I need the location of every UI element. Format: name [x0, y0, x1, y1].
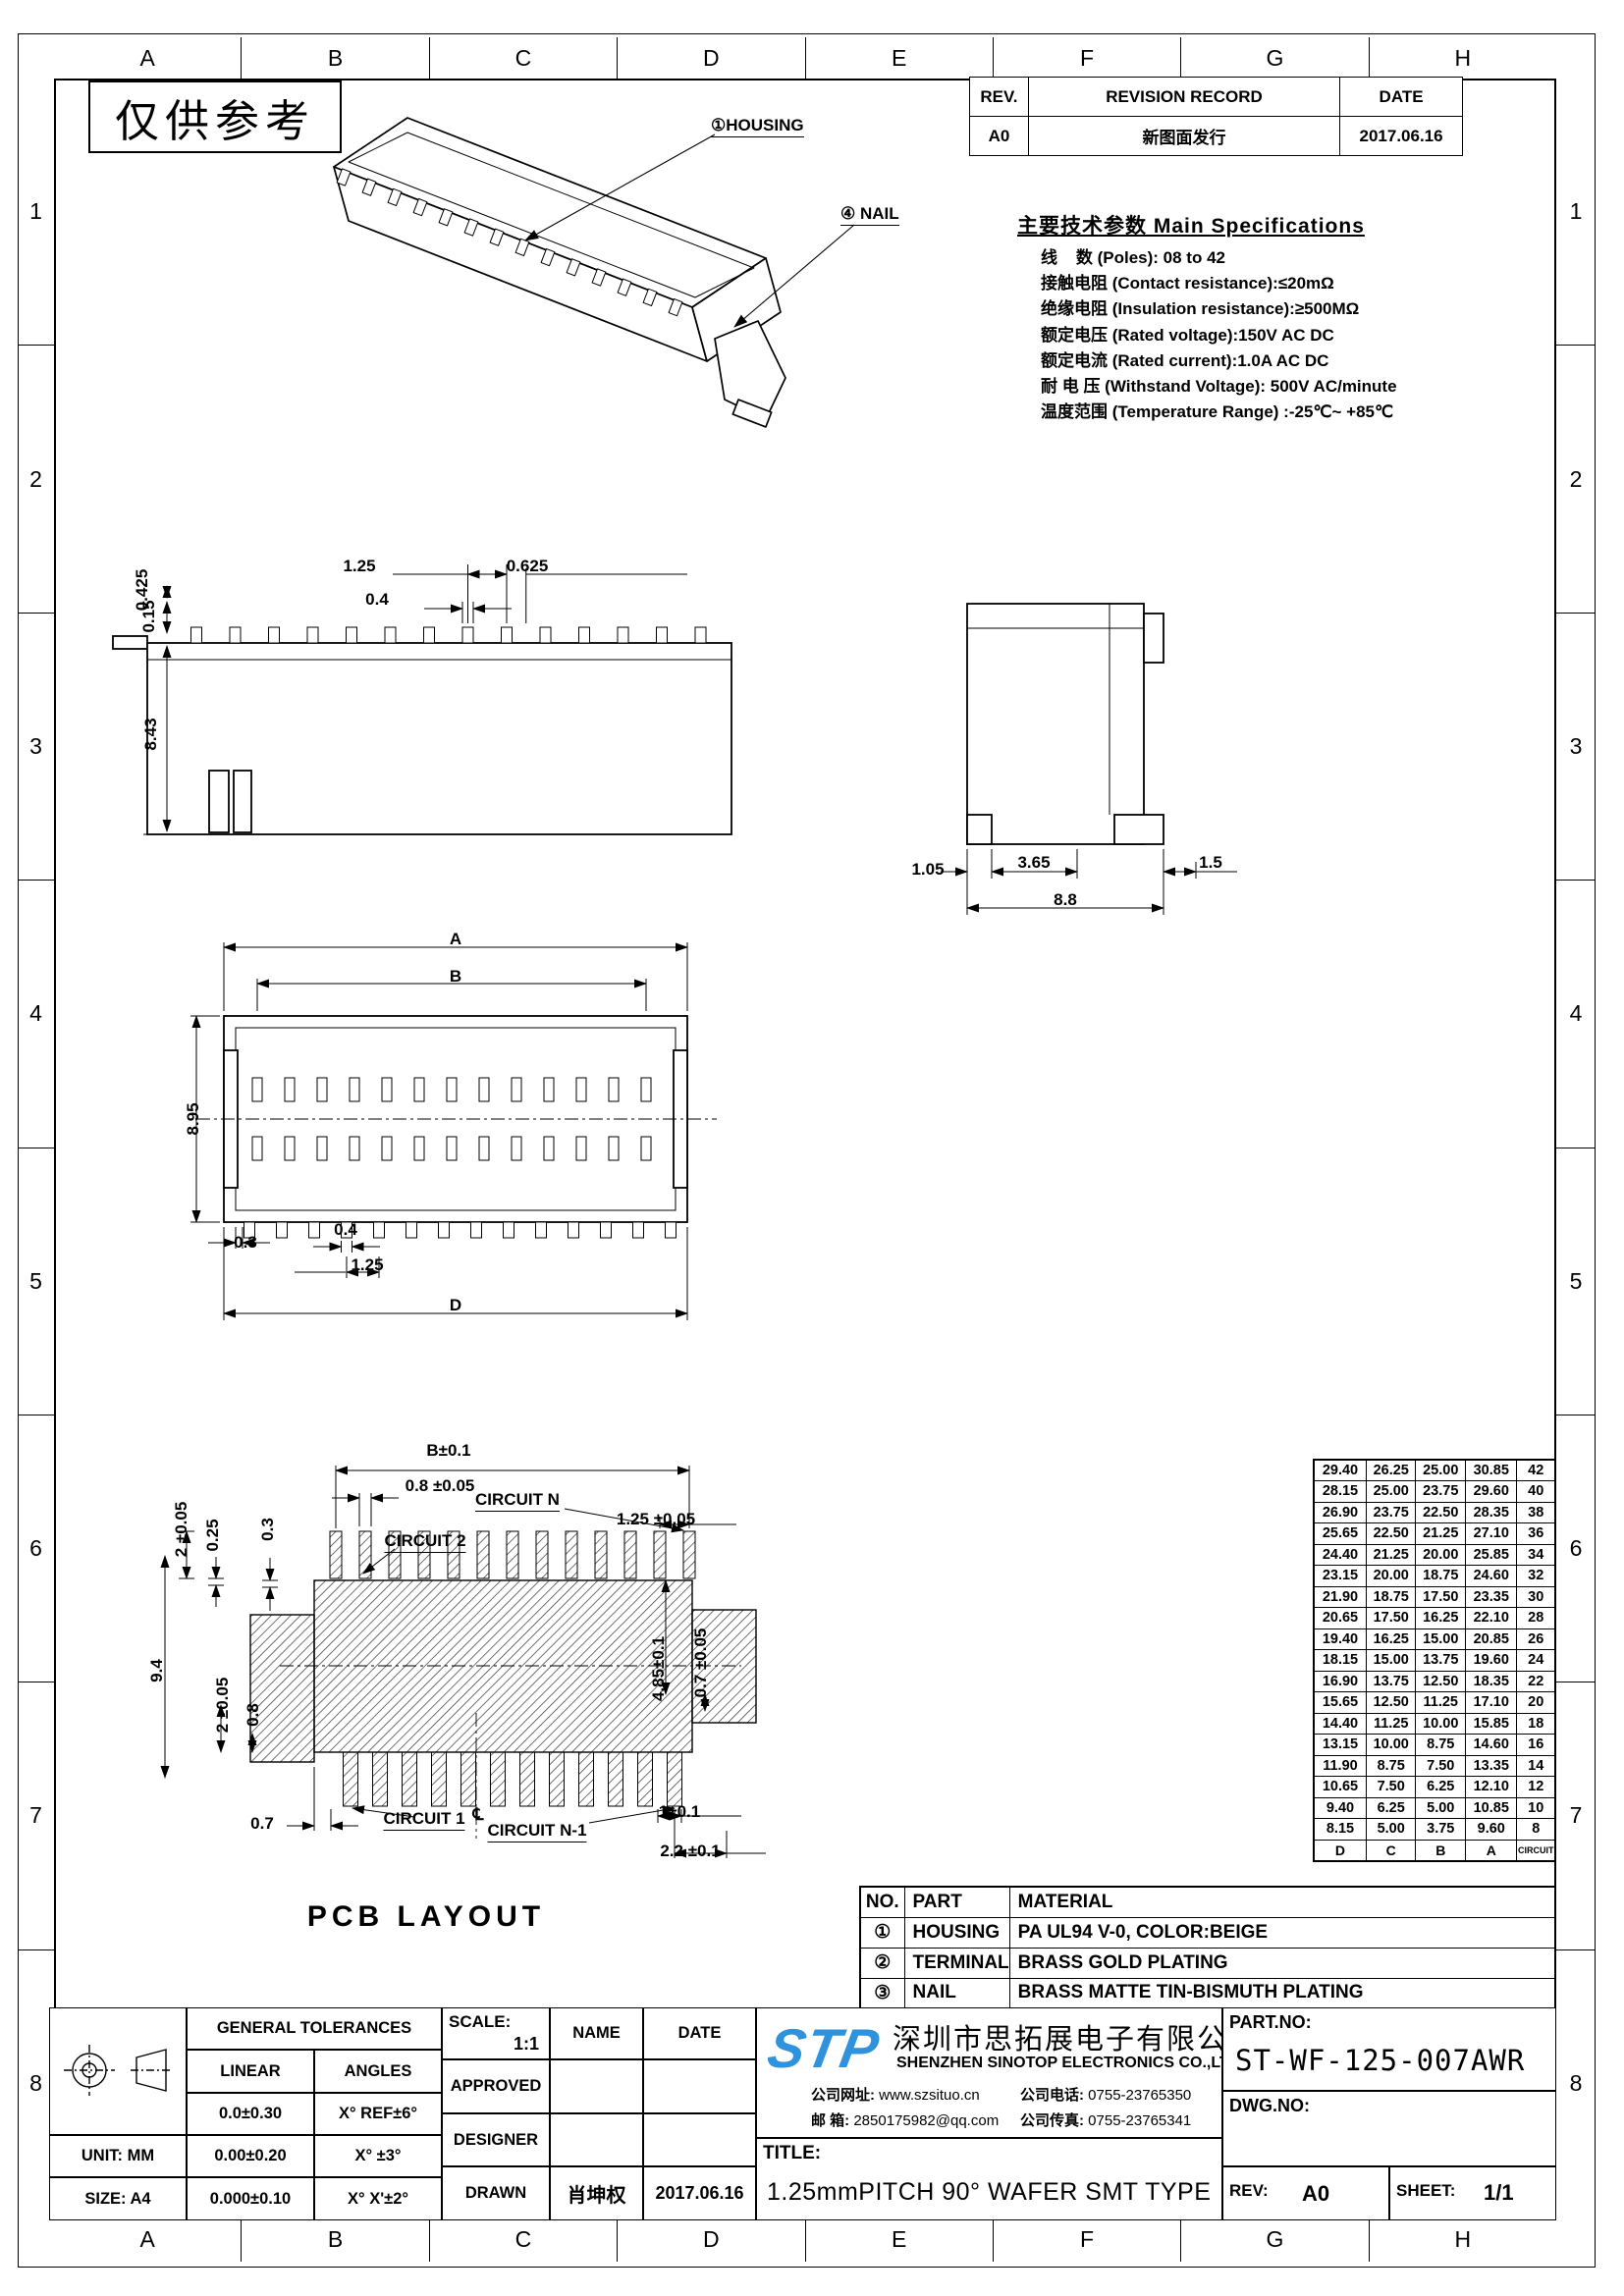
dimension-table-cell: 10 — [1517, 1797, 1555, 1819]
dimension-table-cell: 5.00 — [1366, 1819, 1416, 1841]
dimension-table-row: 21.9018.7517.5023.3530 — [1314, 1586, 1555, 1608]
pcb-dim-b: B±0.1 — [426, 1441, 470, 1461]
front-dim-height: 8.43 — [141, 718, 161, 750]
top-dim-04: 0.4 — [334, 1220, 357, 1240]
linear-tol-3: 0.000±0.10 — [210, 2190, 291, 2209]
scale-label: SCALE: — [449, 2012, 511, 2032]
dim-col-d: D — [1314, 1840, 1366, 1861]
part-no-label: PART.NO: — [1229, 2012, 1312, 2033]
dimension-table-row: 29.4026.2525.0030.8542 — [1314, 1460, 1555, 1481]
sheet-value: 1/1 — [1484, 2180, 1514, 2206]
rev-label: REV: — [1229, 2181, 1269, 2201]
dimension-table-cell: 42 — [1517, 1460, 1555, 1481]
pcb-circuit-1-callout: CIRCUIT 1 — [383, 1809, 464, 1831]
nail-callout: ④ NAIL — [840, 204, 899, 226]
projection-symbol-icon — [50, 2008, 184, 2132]
dimension-table-row: 13.1510.008.7514.6016 — [1314, 1735, 1555, 1756]
grid-letter: A — [54, 2216, 241, 2262]
date-header-cell: DATE — [643, 2007, 756, 2059]
material-no: ② — [860, 1948, 904, 1978]
grid-letter: A — [54, 37, 241, 79]
part-no-value: ST-WF-125-007AWR — [1235, 2044, 1525, 2077]
dimension-table-cell: 10.00 — [1416, 1713, 1466, 1735]
pcb-dim-08: 0.8 — [244, 1703, 263, 1727]
dimension-table-cell: 16.25 — [1366, 1629, 1416, 1650]
dimension-table-cell: 29.40 — [1314, 1460, 1366, 1481]
material-part: HOUSING — [904, 1917, 1009, 1948]
dimension-table-cell: 16.90 — [1314, 1671, 1366, 1692]
dimension-table-cell: 18.35 — [1466, 1671, 1517, 1692]
grid-number: 6 — [1556, 1415, 1596, 1682]
dimension-table-cell: 32 — [1517, 1566, 1555, 1587]
grid-letter: E — [805, 37, 993, 79]
dimension-table-cell: 24 — [1517, 1650, 1555, 1672]
dimension-table-cell: 23.35 — [1466, 1586, 1517, 1608]
dimension-table-row: 15.6512.5011.2517.1020 — [1314, 1692, 1555, 1714]
tolerances-title: GENERAL TOLERANCES — [217, 2019, 411, 2038]
dimension-table-row: 16.9013.7512.5018.3522 — [1314, 1671, 1555, 1692]
grid-number: 4 — [18, 880, 54, 1147]
specification-line: 接触电阻 (Contact resistance):≤20mΩ — [1041, 271, 1397, 296]
dimension-table-cell: 34 — [1517, 1544, 1555, 1566]
grid-letter: D — [617, 37, 804, 79]
grid-number: 7 — [1556, 1682, 1596, 1949]
dimension-table-cell: 10.85 — [1466, 1797, 1517, 1819]
name-header-cell: NAME — [550, 2007, 643, 2059]
dim-col-b: B — [1416, 1840, 1466, 1861]
front-view — [98, 535, 766, 859]
designer-cell: DESIGNER — [442, 2113, 550, 2166]
drawing-title: 1.25mmPITCH 90° WAFER SMT TYPE — [767, 2178, 1211, 2207]
grid-letter: H — [1369, 37, 1556, 79]
angle-tol-3: X° X'±2° — [348, 2190, 408, 2209]
dimension-table-cell: 10.00 — [1366, 1735, 1416, 1756]
date-value: 2017.06.16 — [1340, 117, 1463, 156]
website-value: www.szsituo.cn — [879, 2087, 980, 2104]
angle-tol-1-cell: X° REF±6° — [314, 2093, 442, 2135]
dimension-table-cell: 20.65 — [1314, 1608, 1366, 1629]
grid-letter: D — [617, 2216, 804, 2262]
grid-letter: H — [1369, 2216, 1556, 2262]
dimension-table-cell: 13.75 — [1366, 1671, 1416, 1692]
material-part: TERMINAL — [904, 1948, 1009, 1978]
material-row: ② TERMINAL BRASS GOLD PLATING — [860, 1948, 1555, 1978]
dimension-table-row: 19.4016.2515.0020.8526 — [1314, 1629, 1555, 1650]
angle-tol-2: X° ±3° — [354, 2147, 401, 2165]
phone-value: 0755-23765350 — [1088, 2087, 1191, 2104]
company-website: 公司网址: www.szsituo.cn — [811, 2084, 980, 2105]
dimension-table-cell: 28.35 — [1466, 1502, 1517, 1523]
grid-letter: C — [429, 2216, 617, 2262]
side-dim-mid: 3.65 — [1017, 853, 1050, 873]
dimension-table-cell: 25.85 — [1466, 1544, 1517, 1566]
record-value: 新图面发行 — [1028, 117, 1339, 156]
linear-tol-3-cell: 0.000±0.10 — [187, 2177, 314, 2220]
rev-cell: REV: A0 — [1222, 2166, 1389, 2220]
dimension-table-cell: 20.85 — [1466, 1629, 1517, 1650]
material-material: BRASS GOLD PLATING — [1009, 1948, 1555, 1978]
dimension-table-cell: 25.00 — [1366, 1481, 1416, 1503]
unit-label: UNIT: MM — [81, 2147, 154, 2165]
material-part: NAIL — [904, 1978, 1009, 2008]
specification-line: 温度范围 (Temperature Range) :-25℃~ +85℃ — [1041, 400, 1397, 425]
front-dim-thickness: 0.15 — [139, 600, 159, 632]
company-phone: 公司电话: 0755-23765350 — [1020, 2084, 1191, 2105]
dim-col-a: A — [1466, 1840, 1517, 1861]
size-label: SIZE: A4 — [84, 2190, 150, 2209]
dimension-table-cell: 27.10 — [1466, 1523, 1517, 1545]
sheet-label: SHEET: — [1396, 2181, 1455, 2201]
dimension-table-cell: 8 — [1517, 1819, 1555, 1841]
drawn-cell: DRAWN — [442, 2166, 550, 2220]
drawn-label: DRAWN — [465, 2184, 526, 2203]
dimension-table-cell: 15.00 — [1416, 1629, 1466, 1650]
company-name-cn: 深圳市思拓展电子有限公司 — [893, 2016, 1258, 2057]
material-header-row: NO. PART MATERIAL — [860, 1887, 1555, 1917]
company-logo: STP — [763, 2016, 884, 2080]
dimension-table-cell: 9.60 — [1466, 1819, 1517, 1841]
specifications-list: 线 数 (Poles): 08 to 42接触电阻 (Contact resis… — [1041, 245, 1397, 425]
pcb-circuit-n-callout: CIRCUIT N — [475, 1490, 560, 1512]
dimension-table-cell: 12 — [1517, 1777, 1555, 1798]
dimension-table: 29.4026.2525.0030.854228.1525.0023.7529.… — [1313, 1459, 1556, 1862]
housing-callout: ①HOUSING — [711, 116, 804, 137]
dwg-no-cell: DWG.NO: — [1222, 2091, 1556, 2166]
dimension-table-row: 14.4011.2510.0015.8518 — [1314, 1713, 1555, 1735]
dimension-table-cell: 5.00 — [1416, 1797, 1466, 1819]
linear-tol-1-cell: 0.0±0.30 — [187, 2093, 314, 2135]
dimension-table-row: 10.657.506.2512.1012 — [1314, 1777, 1555, 1798]
dimension-table-cell: 9.40 — [1314, 1797, 1366, 1819]
dimension-table-row: 24.4021.2520.0025.8534 — [1314, 1544, 1555, 1566]
pcb-circuit-2-callout: CIRCUIT 2 — [384, 1531, 465, 1553]
title-cell: TITLE: 1.25mmPITCH 90° WAFER SMT TYPE — [756, 2138, 1222, 2220]
title-label: TITLE: — [763, 2143, 821, 2164]
company-fax: 公司传真: 0755-23765341 — [1020, 2109, 1191, 2130]
angles-header: ANGLES — [345, 2062, 412, 2081]
grid-number: 3 — [18, 613, 54, 880]
side-dim-right: 1.5 — [1199, 853, 1222, 873]
dimension-table-cell: 21.25 — [1366, 1544, 1416, 1566]
dimension-table-cell: 25.65 — [1314, 1523, 1366, 1545]
grid-number: 5 — [1556, 1148, 1596, 1415]
grid-letter: B — [241, 2216, 428, 2262]
pcb-centerline-symbol: ℄ — [473, 1805, 484, 1825]
pcb-dim-2b: 2 ±0.05 — [213, 1678, 233, 1734]
dimension-table-row: 25.6522.5021.2527.1036 — [1314, 1523, 1555, 1545]
linear-header: LINEAR — [220, 2062, 280, 2081]
dimension-table-cell: 14.60 — [1466, 1735, 1517, 1756]
dimension-table-cell: 19.60 — [1466, 1650, 1517, 1672]
date-header: DATE — [678, 2024, 722, 2043]
unit-cell: UNIT: MM — [49, 2135, 187, 2177]
drawn-date: 2017.06.16 — [655, 2183, 743, 2204]
dimension-table-row: 9.406.255.0010.8510 — [1314, 1797, 1555, 1819]
dimension-table-cell: 22.50 — [1366, 1523, 1416, 1545]
drawing-sheet: ABCDEFGH ABCDEFGH 12345678 12345678 仅供参考… — [0, 0, 1624, 2296]
dimension-table-cell: 7.50 — [1366, 1777, 1416, 1798]
pcb-dim-2a: 2 ±0.05 — [172, 1502, 191, 1558]
top-dim-03: 0.3 — [234, 1233, 257, 1253]
dimension-table-cell: 28 — [1517, 1608, 1555, 1629]
material-row: ① HOUSING PA UL94 V-0, COLOR:BEIGE — [860, 1917, 1555, 1948]
company-cell: STP 深圳市思拓展电子有限公司 SHENZHEN SINOTOP ELECTR… — [756, 2007, 1222, 2138]
grid-number: 5 — [18, 1148, 54, 1415]
pcb-dim-485: 4.85±0.1 — [649, 1636, 669, 1701]
designer-label: DESIGNER — [454, 2131, 538, 2150]
material-material-header: MATERIAL — [1009, 1887, 1555, 1917]
dimension-table-cell: 23.15 — [1314, 1566, 1366, 1587]
rev-header: REV. — [970, 78, 1029, 117]
grid-letter: C — [429, 37, 617, 79]
material-no: ③ — [860, 1978, 904, 2008]
drawn-date-cell: 2017.06.16 — [643, 2166, 756, 2220]
part-no-cell: PART.NO: ST-WF-125-007AWR — [1222, 2007, 1556, 2091]
dimension-table-cell: 25.00 — [1416, 1460, 1466, 1481]
dimension-table-row: 23.1520.0018.7524.6032 — [1314, 1566, 1555, 1587]
company-email: 邮 箱: 2850175982@qq.com — [811, 2109, 999, 2130]
dimension-table-cell: 8.15 — [1314, 1819, 1366, 1841]
material-no: ① — [860, 1917, 904, 1948]
dimension-table-cell: 21.25 — [1416, 1523, 1466, 1545]
dimension-table-row: 20.6517.5016.2522.1028 — [1314, 1608, 1555, 1629]
pcb-dim-03: 0.3 — [258, 1518, 278, 1541]
dimension-table-cell: 20.00 — [1416, 1544, 1466, 1566]
top-dim-b: B — [450, 967, 461, 987]
phone-label: 公司电话: — [1020, 2087, 1084, 2104]
material-part-header: PART — [904, 1887, 1009, 1917]
dimension-table-cell: 12.50 — [1416, 1671, 1466, 1692]
grid-number: 6 — [18, 1415, 54, 1682]
dimension-table-cell: 24.40 — [1314, 1544, 1366, 1566]
top-dim-height: 8.95 — [184, 1102, 203, 1135]
angle-tol-1: X° REF±6° — [339, 2105, 417, 2123]
dimension-table-row: 26.9023.7522.5028.3538 — [1314, 1502, 1555, 1523]
grid-band-left: 12345678 — [18, 79, 54, 2216]
dimension-table-cell: 22 — [1517, 1671, 1555, 1692]
material-material: BRASS MATTE TIN-BISMUTH PLATING — [1009, 1978, 1555, 2008]
grid-number: 1 — [1556, 79, 1596, 345]
designer-name-cell — [550, 2113, 643, 2166]
grid-number: 2 — [18, 345, 54, 612]
fax-value: 0755-23765341 — [1088, 2112, 1191, 2129]
dimension-table-cell: 12.10 — [1466, 1777, 1517, 1798]
dimension-table-cell: 26.90 — [1314, 1502, 1366, 1523]
side-view — [913, 569, 1247, 942]
dimension-table-cell: 12.50 — [1366, 1692, 1416, 1714]
dimension-table-cell: 14.40 — [1314, 1713, 1366, 1735]
angle-tol-2-cell: X° ±3° — [314, 2135, 442, 2177]
grid-number: 4 — [1556, 880, 1596, 1147]
grid-letter: E — [805, 2216, 993, 2262]
rev-value: A0 — [970, 117, 1029, 156]
grid-band-bottom: ABCDEFGH — [54, 2216, 1556, 2262]
dimension-table-cell: 23.75 — [1416, 1481, 1466, 1503]
dimension-table-row: 28.1525.0023.7529.6040 — [1314, 1481, 1555, 1503]
dimension-table-cell: 29.60 — [1466, 1481, 1517, 1503]
pcb-dim-pad-width: 0.8 ±0.05 — [406, 1476, 475, 1496]
pcb-dim-07t: 0.7 ±0.05 — [691, 1629, 711, 1698]
dimension-table-cell: 11.90 — [1314, 1755, 1366, 1777]
material-no-header: NO. — [860, 1887, 904, 1917]
specification-line: 额定电压 (Rated voltage):150V AC DC — [1041, 323, 1397, 348]
linear-tol-2-cell: 0.00±0.20 — [187, 2135, 314, 2177]
pcb-circuit-n1-callout: CIRCUIT N-1 — [487, 1821, 586, 1842]
name-header: NAME — [572, 2024, 621, 2043]
designer-date-cell — [643, 2113, 756, 2166]
dimension-table-cell: 10.65 — [1314, 1777, 1366, 1798]
top-dim-pitch: 1.25 — [351, 1255, 383, 1275]
specification-line: 线 数 (Poles): 08 to 42 — [1041, 245, 1397, 271]
material-material: PA UL94 V-0, COLOR:BEIGE — [1009, 1917, 1555, 1948]
drawn-name: 肖坤权 — [568, 2179, 626, 2208]
top-dim-a: A — [450, 930, 461, 949]
grid-band-top: ABCDEFGH — [54, 37, 1556, 79]
approved-cell: APPROVED — [442, 2059, 550, 2113]
dimension-table-cell: 18.75 — [1366, 1586, 1416, 1608]
dim-col-circuit: CIRCUIT — [1517, 1840, 1555, 1861]
dimension-table-cell: 14 — [1517, 1755, 1555, 1777]
angles-header-cell: ANGLES — [314, 2050, 442, 2093]
pcb-dim-22: 2.2 ±0.1 — [660, 1842, 720, 1861]
dimension-table-row: 11.908.757.5013.3514 — [1314, 1755, 1555, 1777]
pcb-dim-94: 9.4 — [147, 1659, 167, 1682]
fax-label: 公司传真: — [1020, 2112, 1084, 2129]
dimension-table-cell: 8.75 — [1366, 1755, 1416, 1777]
approved-label: APPROVED — [451, 2077, 542, 2096]
dimension-table-cell: 11.25 — [1366, 1713, 1416, 1735]
dimension-table-cell: 23.75 — [1366, 1502, 1416, 1523]
side-dim-total: 8.8 — [1054, 890, 1077, 910]
dimension-table-row: 18.1515.0013.7519.6024 — [1314, 1650, 1555, 1672]
revision-table: REV. REVISION RECORD DATE A0 新图面发行 2017.… — [969, 77, 1463, 156]
material-row: ③ NAIL BRASS MATTE TIN-BISMUTH PLATING — [860, 1978, 1555, 2008]
dimension-table-cell: 15.65 — [1314, 1692, 1366, 1714]
dimension-table-cell: 36 — [1517, 1523, 1555, 1545]
pcb-dim-025: 0.25 — [203, 1519, 223, 1551]
material-table: NO. PART MATERIAL ① HOUSING PA UL94 V-0,… — [859, 1886, 1556, 2009]
record-header: REVISION RECORD — [1028, 78, 1339, 117]
email-value: 2850175982@qq.com — [853, 2112, 999, 2129]
size-cell: SIZE: A4 — [49, 2177, 187, 2220]
grid-letter: F — [993, 37, 1180, 79]
dimension-table-cell: 28.15 — [1314, 1481, 1366, 1503]
dimension-table-row: 8.155.003.759.608 — [1314, 1819, 1555, 1841]
dimension-table-cell: 17.50 — [1416, 1586, 1466, 1608]
scale-value: 1:1 — [514, 2034, 539, 2055]
top-view — [137, 923, 746, 1345]
revision-header-row: REV. REVISION RECORD DATE — [970, 78, 1463, 117]
angle-tol-3-cell: X° X'±2° — [314, 2177, 442, 2220]
dwg-no-label: DWG.NO: — [1229, 2096, 1310, 2116]
grid-letter: B — [241, 37, 428, 79]
grid-letter: F — [993, 2216, 1180, 2262]
grid-letter: G — [1180, 2216, 1368, 2262]
sheet-cell: SHEET: 1/1 — [1389, 2166, 1556, 2220]
dimension-table-cell: 15.85 — [1466, 1713, 1517, 1735]
dimension-table-cell: 16 — [1517, 1735, 1555, 1756]
revision-row: A0 新图面发行 2017.06.16 — [970, 117, 1463, 156]
dimension-table-cell: 17.10 — [1466, 1692, 1517, 1714]
linear-tol-2: 0.00±0.20 — [214, 2147, 286, 2165]
grid-number: 1 — [18, 79, 54, 345]
front-dim-half-pitch: 0.625 — [507, 557, 549, 576]
dimension-table-cell: 26 — [1517, 1629, 1555, 1650]
dimension-table-cell: 30.85 — [1466, 1460, 1517, 1481]
dimension-table-cell: 13.75 — [1416, 1650, 1466, 1672]
specification-line: 耐 电 压 (Withstand Voltage): 500V AC/minut… — [1041, 374, 1397, 400]
rev-value: A0 — [1302, 2181, 1329, 2207]
dimension-table-cell: 24.60 — [1466, 1566, 1517, 1587]
dimension-table-cell: 7.50 — [1416, 1755, 1466, 1777]
dimension-table-cell: 18 — [1517, 1713, 1555, 1735]
grid-number: 8 — [1556, 1949, 1596, 2216]
dimension-table-cell: 18.15 — [1314, 1650, 1366, 1672]
pcb-layout-caption: PCB LAYOUT — [307, 1900, 545, 1934]
website-label: 公司网址: — [811, 2087, 875, 2104]
dimension-table-cell: 21.90 — [1314, 1586, 1366, 1608]
dimension-table-cell: 13.15 — [1314, 1735, 1366, 1756]
dimension-table-cell: 11.25 — [1416, 1692, 1466, 1714]
dimension-table-cell: 40 — [1517, 1481, 1555, 1503]
specifications-title: 主要技术参数 Main Specifications — [1017, 210, 1365, 240]
pcb-dim-07: 0.7 — [250, 1814, 274, 1834]
dimension-table-cell: 8.75 — [1416, 1735, 1466, 1756]
dimension-table-cell: 19.40 — [1314, 1629, 1366, 1650]
dimension-table-cell: 6.25 — [1416, 1777, 1466, 1798]
dimension-table-cell: 30 — [1517, 1586, 1555, 1608]
dimension-table-cell: 18.75 — [1416, 1566, 1466, 1587]
email-label: 邮 箱: — [811, 2112, 849, 2129]
scale-cell: SCALE: 1:1 — [442, 2007, 550, 2059]
dimension-table-cell: 16.25 — [1416, 1608, 1466, 1629]
specification-line: 额定电流 (Rated current):1.0A AC DC — [1041, 348, 1397, 374]
approved-date-cell — [643, 2059, 756, 2113]
dimension-table-cell: 17.50 — [1366, 1608, 1416, 1629]
grid-number: 2 — [1556, 345, 1596, 612]
approved-name-cell — [550, 2059, 643, 2113]
drawn-name-cell: 肖坤权 — [550, 2166, 643, 2220]
front-dim-pad-width: 0.4 — [365, 590, 389, 610]
dimension-table-cell: 13.35 — [1466, 1755, 1517, 1777]
specification-line: 绝缘电阻 (Insulation resistance):≥500MΩ — [1041, 296, 1397, 322]
dimension-table-cell: 22.50 — [1416, 1502, 1466, 1523]
dimension-table-header-row: D C B A CIRCUIT — [1314, 1840, 1555, 1861]
dimension-table-cell: 15.00 — [1366, 1650, 1416, 1672]
dimension-table-cell: 20 — [1517, 1692, 1555, 1714]
isometric-view — [275, 93, 884, 486]
dimension-table-cell: 38 — [1517, 1502, 1555, 1523]
dimension-table-cell: 3.75 — [1416, 1819, 1466, 1841]
company-name-en: SHENZHEN SINOTOP ELECTRONICS CO.,LTD — [896, 2055, 1240, 2072]
linear-header-cell: LINEAR — [187, 2050, 314, 2093]
dimension-table-cell: 20.00 — [1366, 1566, 1416, 1587]
projection-symbol-cell — [49, 2007, 187, 2135]
linear-tol-1: 0.0±0.30 — [219, 2105, 282, 2123]
tolerances-header-cell: GENERAL TOLERANCES — [187, 2007, 442, 2050]
dimension-table-cell: 26.25 — [1366, 1460, 1416, 1481]
dimension-table-cell: 22.10 — [1466, 1608, 1517, 1629]
dimension-table-cell: 6.25 — [1366, 1797, 1416, 1819]
grid-band-right: 12345678 — [1556, 79, 1596, 2216]
front-dim-pitch: 1.25 — [343, 557, 375, 576]
grid-number: 3 — [1556, 613, 1596, 880]
pcb-dim-1: 1±0.1 — [659, 1802, 700, 1822]
pcb-dim-pitch: 1.25 ±0.05 — [617, 1510, 695, 1529]
dim-col-c: C — [1366, 1840, 1416, 1861]
top-dim-d: D — [450, 1296, 461, 1315]
side-dim-left: 1.05 — [911, 860, 944, 880]
